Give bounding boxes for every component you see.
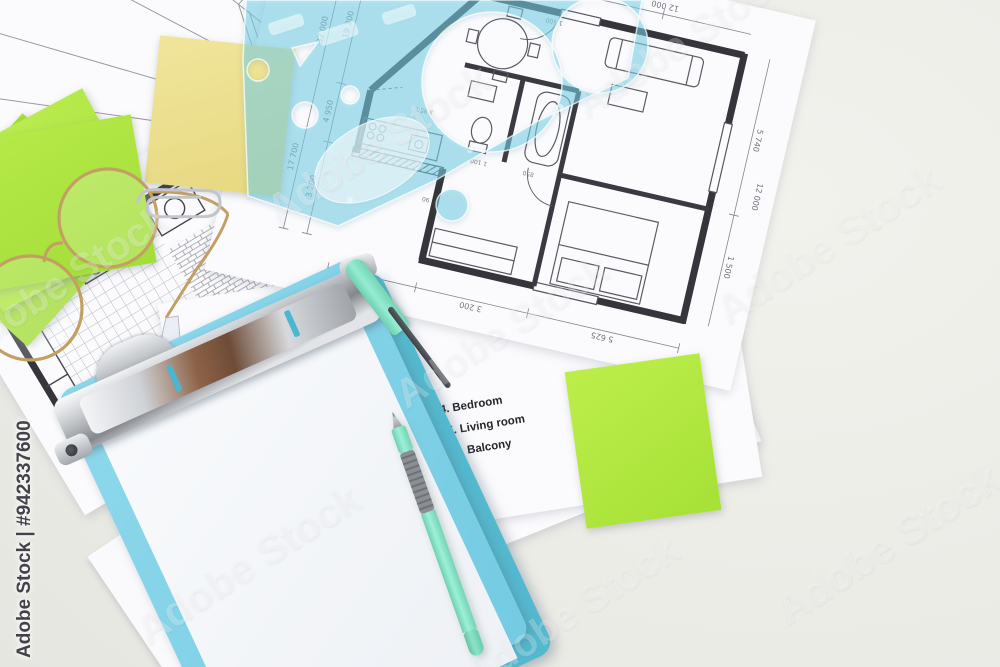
sticky-note-green-bottom — [565, 353, 722, 528]
legend-item: 5. Living room — [446, 413, 526, 437]
watermark-credit: Adobe Stock | #942337600 — [14, 398, 36, 658]
watermark-text: Adobe Stock — [768, 454, 1000, 634]
drafting-stencil — [0, 0, 700, 280]
legend-item: 4. Bedroom — [439, 395, 503, 417]
desk-surface: 4 4. Bedroom 5. Living room 6. Balcony — [0, 0, 1000, 667]
dimension-label: 12 000 — [750, 182, 765, 211]
